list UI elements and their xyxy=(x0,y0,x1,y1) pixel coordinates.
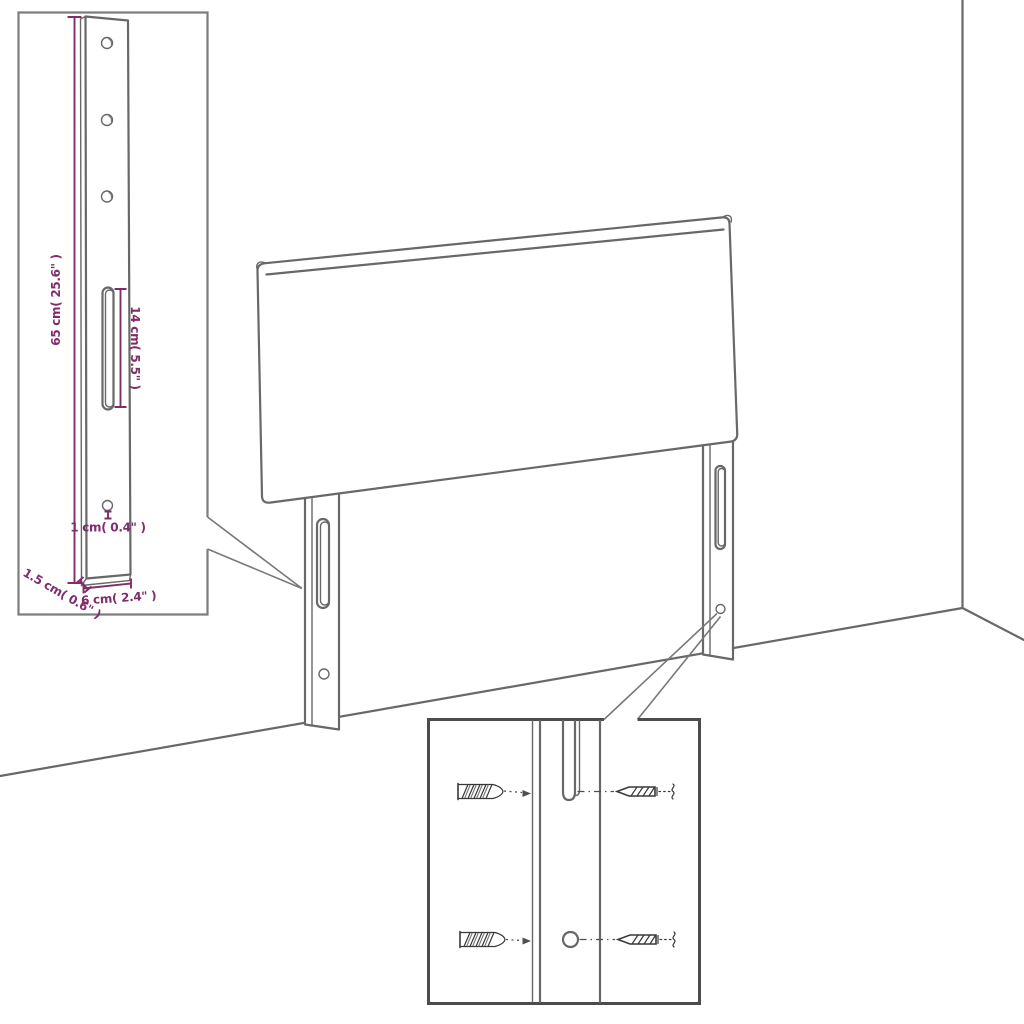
mounting-guide-lines xyxy=(504,790,615,945)
headboard-leg-left xyxy=(305,488,339,730)
dimension-leg-height-label: 65 cm( 25.6" ) xyxy=(49,254,63,345)
headboard-diagram-svg: 65 cm( 25.6" ) 14 cm( 5.5" ) 1 cm( 0.4" … xyxy=(0,0,1024,1024)
mounting-leg-strip xyxy=(533,721,601,1002)
mounting-hole xyxy=(563,932,578,947)
callout-left-leg xyxy=(208,517,303,589)
mounting-detail-inset xyxy=(429,720,700,1004)
dimension-leg-height: 65 cm( 25.6" ) xyxy=(49,17,82,583)
dimension-leg-width-label: 6 cm( 2.4" ) xyxy=(81,588,157,607)
mounting-slot xyxy=(563,721,575,800)
leg-detail-drawing xyxy=(81,17,131,586)
leg-detail-inset: 65 cm( 25.6" ) 14 cm( 5.5" ) 1 cm( 0.4" … xyxy=(19,13,208,622)
headboard-panel xyxy=(257,215,737,502)
screw-icon xyxy=(617,784,674,799)
wall-plug-icon xyxy=(458,784,503,800)
diagram-canvas: 65 cm( 25.6" ) 14 cm( 5.5" ) 1 cm( 0.4" … xyxy=(0,0,1024,1024)
dimension-hole-diameter-label: 1 cm( 0.4" ) xyxy=(70,521,145,535)
floor-line-right xyxy=(963,608,1024,640)
floor-line-left xyxy=(0,608,963,776)
headboard-leg-right xyxy=(703,436,733,660)
screw-icon xyxy=(618,932,675,947)
dimension-slot-length-label: 14 cm( 5.5" ) xyxy=(128,306,142,389)
wall-plug-icon xyxy=(460,932,505,948)
